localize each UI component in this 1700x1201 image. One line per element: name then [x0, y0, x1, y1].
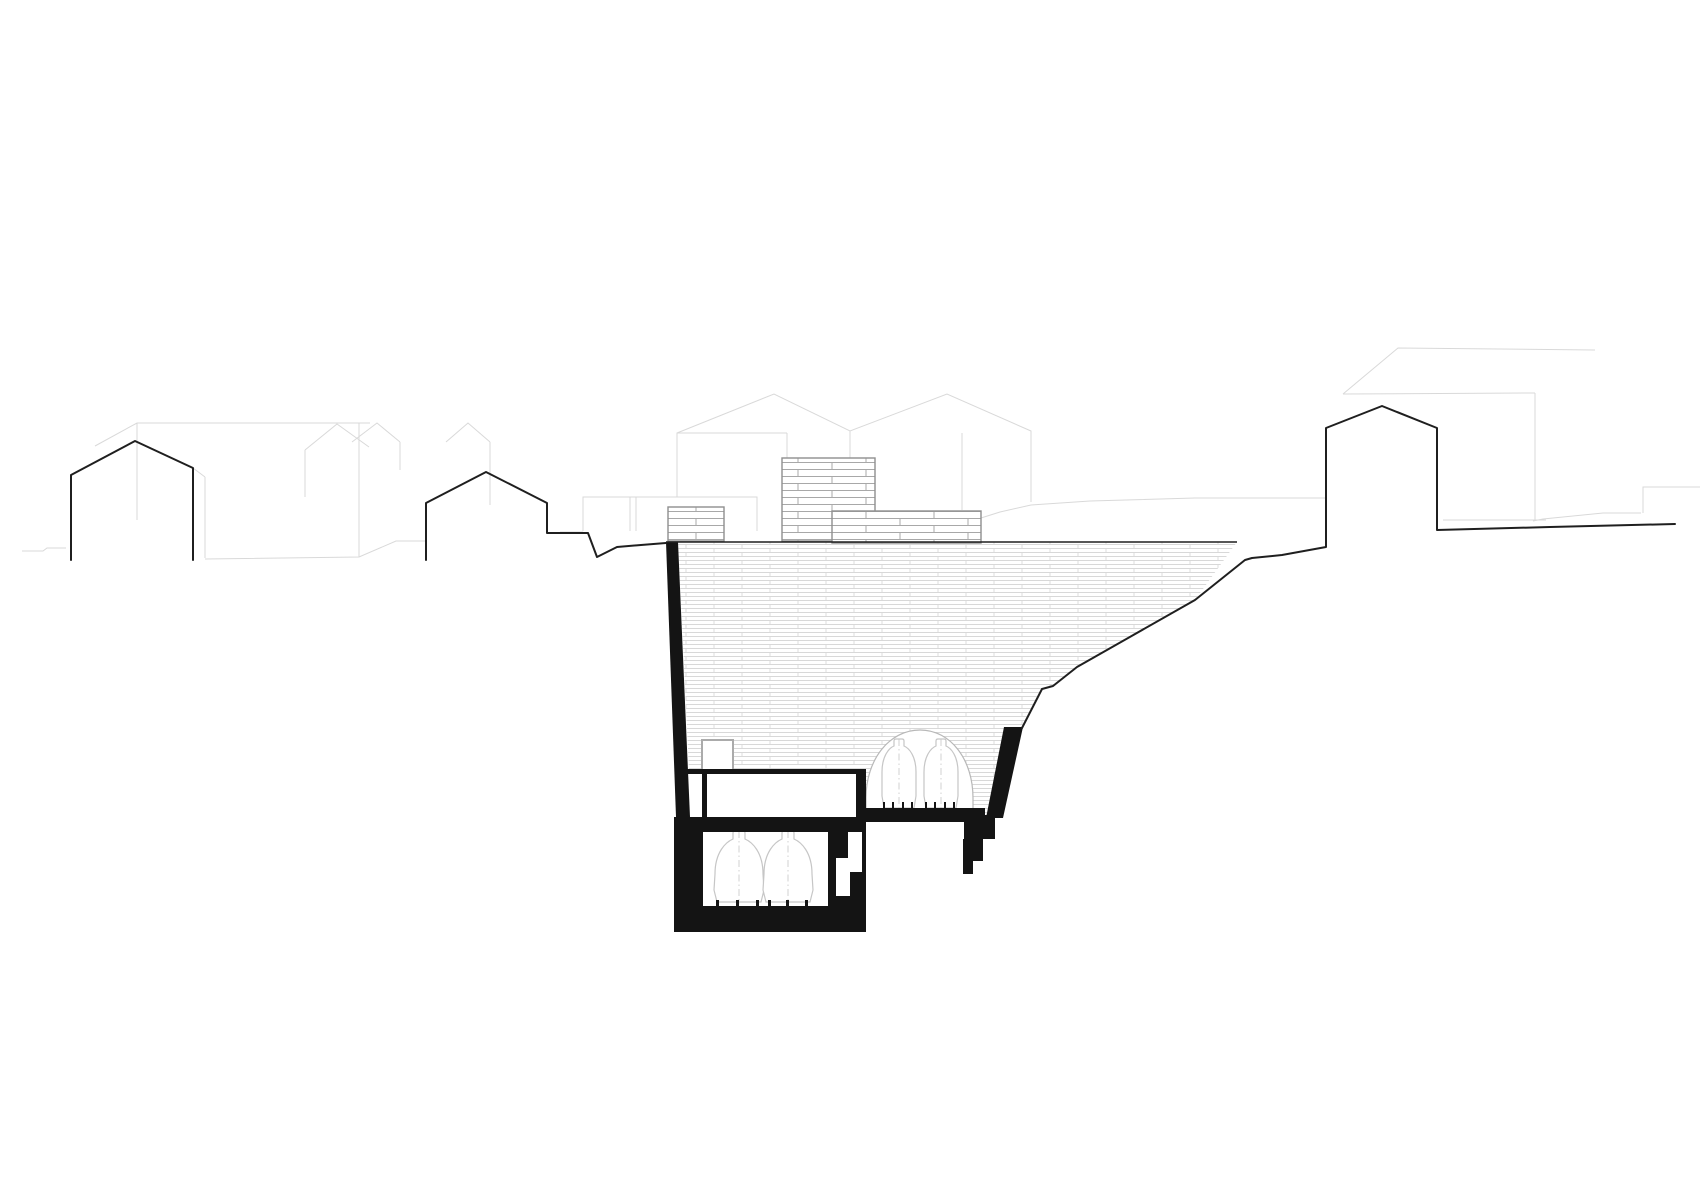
- side-slot-room: [688, 774, 702, 817]
- cellar-opening-lower: [836, 858, 850, 896]
- slot-divider-wall: [702, 774, 707, 817]
- silhouette-house-left: [71, 441, 193, 560]
- background-buildings-right: [1343, 348, 1700, 521]
- cellar-opening-upper: [848, 832, 862, 872]
- surface-masonry-volumes: [668, 458, 981, 543]
- hall-ceiling-slab: [678, 769, 862, 774]
- masonry-box-wide: [832, 511, 981, 543]
- right-footing-step-2: [963, 839, 983, 861]
- section-drawing: Architectural site section drawing — und…: [0, 0, 1700, 1201]
- section-drawing-page: Architectural site section drawing — und…: [0, 0, 1700, 1201]
- buried-shaft-box: [702, 740, 733, 772]
- upper-hall-room: [707, 774, 856, 817]
- background-buildings-left: [22, 423, 490, 559]
- masonry-box-small: [668, 507, 724, 541]
- hall-wall-right: [856, 769, 866, 832]
- right-footing-step-1: [964, 815, 995, 839]
- right-footing-step-3: [963, 861, 973, 874]
